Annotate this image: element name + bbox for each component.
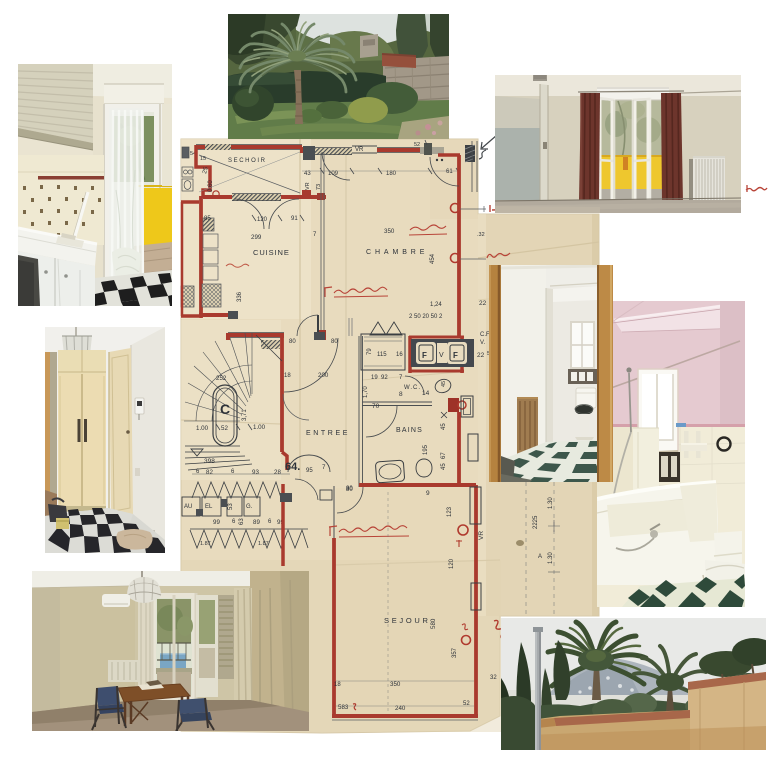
svg-text:120: 120 <box>257 217 268 223</box>
svg-text:28: 28 <box>274 469 281 476</box>
svg-text:91: 91 <box>291 216 298 222</box>
svg-text:85: 85 <box>204 216 211 222</box>
svg-text:8: 8 <box>399 391 403 398</box>
svg-text:1.30: 1.30 <box>548 497 554 509</box>
svg-text:70: 70 <box>372 403 380 410</box>
svg-text:9: 9 <box>426 490 430 497</box>
svg-text:1.30: 1.30 <box>548 552 554 564</box>
svg-text:336: 336 <box>237 291 243 302</box>
svg-text:398: 398 <box>204 458 215 465</box>
svg-text:SEJOUR: SEJOUR <box>384 616 431 625</box>
svg-text:92: 92 <box>381 375 388 381</box>
svg-text:ENTREE: ENTREE <box>306 430 350 437</box>
svg-text:2225: 2225 <box>533 515 539 529</box>
svg-text:VR: VR <box>355 147 364 153</box>
svg-text:1.00: 1.00 <box>196 425 209 432</box>
svg-text:1,24: 1,24 <box>430 302 442 308</box>
svg-text:45: 45 <box>441 423 447 430</box>
svg-text:VR: VR <box>478 531 485 540</box>
svg-text:16: 16 <box>396 352 403 358</box>
svg-text:7: 7 <box>322 464 326 471</box>
svg-text:80: 80 <box>346 487 353 493</box>
svg-text:200: 200 <box>318 372 329 379</box>
svg-text:80: 80 <box>289 339 296 345</box>
svg-text:53: 53 <box>228 503 234 510</box>
svg-text:1,70: 1,70 <box>363 386 369 398</box>
svg-text:123: 123 <box>447 506 453 517</box>
svg-text:52: 52 <box>414 142 420 148</box>
svg-text:115: 115 <box>377 352 387 358</box>
svg-text:SECHOIR: SECHOIR <box>228 158 267 164</box>
svg-text:180: 180 <box>386 171 397 177</box>
svg-text:252: 252 <box>216 375 227 382</box>
svg-text:V: V <box>439 352 444 359</box>
svg-text:580: 580 <box>430 618 437 629</box>
svg-text:0.60: 0.60 <box>208 180 214 192</box>
svg-text:19: 19 <box>371 375 378 381</box>
svg-text:79: 79 <box>367 348 373 355</box>
svg-text:F: F <box>453 351 458 360</box>
svg-text:1.87: 1.87 <box>258 541 269 547</box>
svg-text:61: 61 <box>446 169 453 175</box>
svg-text:52: 52 <box>221 425 228 432</box>
svg-text:583: 583 <box>338 704 349 711</box>
svg-text:3,71: 3,71 <box>242 409 248 421</box>
svg-text:C: C <box>220 401 230 417</box>
svg-text:63: 63 <box>239 518 245 525</box>
svg-text:89: 89 <box>253 519 260 526</box>
svg-text:18: 18 <box>334 682 341 688</box>
svg-text:AU: AU <box>184 504 192 510</box>
svg-text:350: 350 <box>384 228 395 235</box>
svg-text:43: 43 <box>304 171 311 177</box>
svg-text:2 50 20 50 2: 2 50 20 50 2 <box>409 314 443 320</box>
svg-text:45: 45 <box>441 381 447 387</box>
svg-text:W.C.: W.C. <box>404 385 421 391</box>
svg-text:93: 93 <box>252 469 259 476</box>
svg-text:95: 95 <box>306 468 313 474</box>
svg-text:99: 99 <box>213 519 220 526</box>
svg-text:14: 14 <box>422 390 430 397</box>
svg-text:VR: VR <box>305 182 311 190</box>
svg-text:22: 22 <box>479 300 487 307</box>
svg-text:18: 18 <box>284 373 291 379</box>
svg-text:F: F <box>422 351 427 360</box>
svg-text:45: 45 <box>441 463 447 470</box>
svg-text:EL: EL <box>205 504 213 510</box>
svg-text:82: 82 <box>206 469 213 476</box>
svg-text:64.: 64. <box>285 461 300 473</box>
svg-text:1.00: 1.00 <box>253 424 266 431</box>
svg-text:32: 32 <box>490 675 497 681</box>
svg-text:A: A <box>538 554 542 560</box>
svg-text:109: 109 <box>328 171 339 177</box>
svg-text:G.: G. <box>246 504 253 510</box>
svg-text:120: 120 <box>449 558 455 569</box>
svg-text:357: 357 <box>452 647 458 658</box>
svg-text:299: 299 <box>251 234 262 241</box>
svg-text:V.: V. <box>480 340 485 346</box>
svg-text:1.87: 1.87 <box>200 541 211 547</box>
svg-text:C.F: C.F <box>480 332 490 338</box>
svg-text:350: 350 <box>390 681 401 688</box>
svg-text:.32: .32 <box>477 232 485 238</box>
svg-text:22: 22 <box>477 352 485 359</box>
svg-text:CUISINE: CUISINE <box>253 248 290 257</box>
svg-text:80: 80 <box>331 339 338 345</box>
svg-text:195: 195 <box>423 444 429 455</box>
svg-text:454: 454 <box>430 253 436 264</box>
svg-text:67: 67 <box>441 452 447 459</box>
svg-text:CHAMBRE: CHAMBRE <box>366 249 428 256</box>
svg-text:BAINS: BAINS <box>396 427 423 434</box>
